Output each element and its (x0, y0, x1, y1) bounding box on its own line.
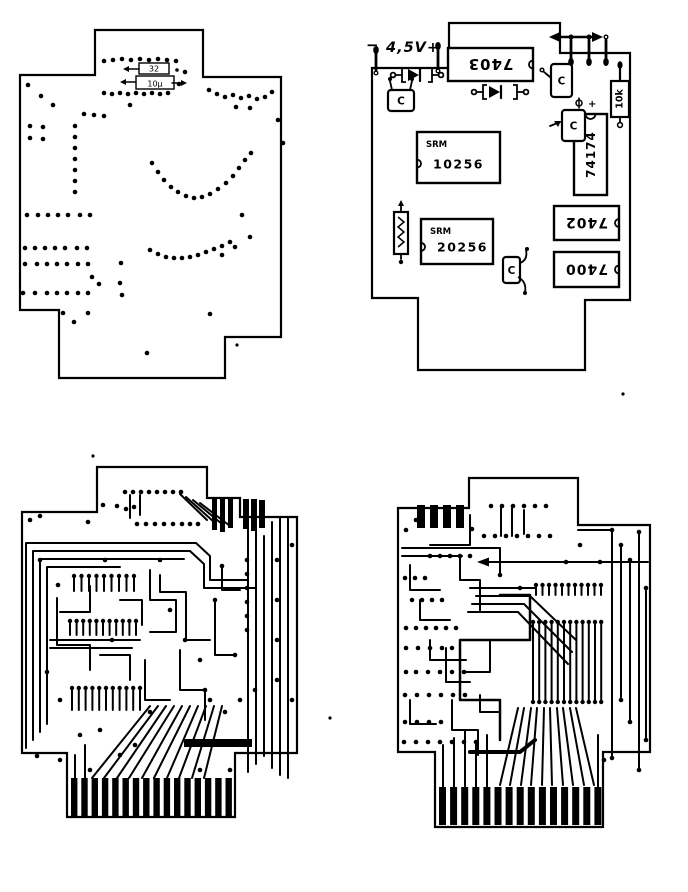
pad (166, 91, 171, 96)
pad (628, 720, 633, 725)
pad (204, 250, 209, 255)
pad (470, 527, 475, 532)
pad (82, 112, 87, 117)
pad (78, 733, 83, 738)
pad (403, 720, 408, 725)
pad (402, 740, 407, 745)
pad (74, 619, 78, 623)
pad (28, 136, 33, 141)
pad (109, 574, 113, 578)
edge-connector-finger (528, 787, 535, 825)
pad (410, 598, 415, 603)
pad (72, 320, 77, 325)
pad (203, 688, 208, 693)
pad (156, 252, 161, 257)
pad (65, 291, 70, 296)
pad (176, 190, 181, 195)
pad (427, 693, 432, 698)
edge-connector-finger (205, 778, 211, 816)
pad (637, 530, 642, 535)
panel-component-side (398, 478, 650, 827)
pad (23, 262, 28, 267)
pad (427, 720, 432, 725)
pad (220, 244, 225, 249)
pad (440, 598, 445, 603)
pad (208, 312, 213, 317)
pad (142, 92, 147, 97)
pad (598, 560, 603, 565)
lead-pad (391, 73, 396, 78)
pad (610, 528, 615, 533)
edge-connector-finger (550, 787, 557, 825)
pad (212, 247, 217, 252)
pad (135, 522, 140, 527)
pad (428, 554, 433, 559)
polarity-plus: + (588, 99, 596, 110)
pad (404, 626, 409, 631)
pad (139, 490, 144, 495)
pad (127, 619, 131, 623)
ic-type-label: SRM (430, 227, 451, 237)
scanned-sheet: 3210µ−4,5V+7403SRM10256SRM20256741747402… (0, 0, 688, 892)
pad (423, 576, 428, 581)
pad (245, 614, 250, 619)
pad (76, 262, 81, 267)
pad (587, 700, 591, 704)
pad (237, 166, 242, 171)
pad (35, 262, 40, 267)
pad (534, 583, 538, 587)
pad (156, 170, 161, 175)
pad (281, 141, 286, 146)
pad (171, 522, 176, 527)
ic-part-number: 7403 (468, 55, 514, 73)
pad (86, 311, 91, 316)
pad (198, 658, 203, 663)
pad (231, 93, 236, 98)
pad (124, 574, 128, 578)
pad (21, 291, 26, 296)
pad (556, 700, 560, 704)
thick-trace-bar (417, 505, 425, 528)
thick-trace-bar (443, 505, 451, 528)
pad (231, 174, 236, 179)
pad (148, 248, 153, 253)
lead-blob (617, 61, 622, 69)
pad (610, 756, 615, 761)
edge-connector-finger (472, 787, 479, 825)
pad (102, 59, 107, 64)
pad (414, 626, 419, 631)
edge-connector-finger (123, 778, 129, 816)
pad (132, 505, 137, 510)
pad (45, 262, 50, 267)
pad (77, 686, 81, 690)
pad (76, 291, 81, 296)
thick-trace-bar (251, 499, 257, 531)
pad (439, 720, 444, 725)
capacitor-label: C (508, 265, 516, 277)
pad (83, 686, 87, 690)
edge-connector-finger (71, 778, 77, 816)
scan-speck (621, 392, 624, 395)
ic-part-number: 20256 (437, 239, 488, 254)
lead-blob (435, 42, 441, 50)
pad (543, 620, 547, 624)
pad (523, 291, 527, 295)
pad (86, 520, 91, 525)
pad (73, 124, 78, 129)
scan-speck (328, 716, 331, 719)
pad (578, 543, 583, 548)
pad (65, 262, 70, 267)
pad (207, 88, 212, 93)
pad (245, 600, 250, 605)
pad (55, 291, 60, 296)
lead-blob (586, 58, 592, 66)
pad (208, 192, 213, 197)
edge-connector-finger (495, 787, 502, 825)
ic-part-number: 7402 (565, 214, 608, 230)
pad (525, 247, 529, 251)
pad (248, 106, 253, 111)
pad (101, 503, 106, 508)
edge-connector-finger (92, 778, 98, 816)
edge-connector-finger (133, 778, 139, 816)
pad (33, 291, 38, 296)
pad (43, 246, 48, 251)
pad (275, 638, 280, 643)
edge-connector-finger (450, 787, 457, 825)
pad (403, 576, 408, 581)
pad (208, 698, 213, 703)
pad (63, 246, 68, 251)
pad (97, 282, 102, 287)
pad (73, 135, 78, 140)
edge-connector-finger (483, 787, 490, 825)
edge-connector-finger (583, 787, 590, 825)
pad (593, 700, 597, 704)
pad (462, 740, 467, 745)
edge-connector-finger (461, 787, 468, 825)
edge-connector-finger (153, 778, 159, 816)
pad (404, 528, 409, 533)
pad (416, 646, 421, 651)
lead-blob (373, 46, 379, 54)
pad (101, 619, 105, 623)
pad (592, 583, 596, 587)
edge-connector-finger (439, 787, 446, 825)
pad (110, 92, 115, 97)
pad (249, 151, 254, 156)
mini-component-label: 10µ (147, 80, 162, 89)
pad (428, 646, 433, 651)
pad (547, 583, 551, 587)
pad (438, 670, 443, 675)
pad (415, 693, 420, 698)
pad (35, 754, 40, 759)
pad (38, 514, 43, 519)
pad (628, 558, 633, 563)
pad (147, 58, 152, 63)
pad (263, 95, 268, 100)
pad (25, 213, 30, 218)
thick-trace-bar (220, 498, 225, 532)
pad (602, 758, 607, 763)
pad (474, 740, 479, 745)
pad (593, 620, 597, 624)
pad (245, 558, 250, 563)
pad (543, 700, 547, 704)
pad (168, 608, 173, 613)
pad (426, 740, 431, 745)
arrowhead-icon (592, 32, 603, 42)
pad (102, 114, 107, 119)
pad (556, 620, 560, 624)
pad (223, 95, 228, 100)
pad (118, 91, 123, 96)
pad (599, 700, 603, 704)
pad (450, 670, 455, 675)
pad (92, 113, 97, 118)
pad (458, 554, 463, 559)
pad (155, 490, 160, 495)
pad (448, 554, 453, 559)
pad (56, 583, 61, 588)
pad (637, 768, 642, 773)
pad (515, 534, 520, 539)
pad (86, 291, 91, 296)
pad (184, 194, 189, 199)
pad (131, 490, 136, 495)
pad (540, 583, 544, 587)
pad (454, 626, 459, 631)
edge-connector-finger (81, 778, 87, 816)
pad (599, 583, 603, 587)
pad (413, 576, 418, 581)
panel-drill-view: 3210µ (20, 30, 285, 378)
pad (574, 620, 578, 624)
pad (179, 490, 184, 495)
pad (73, 190, 78, 195)
edge-connector-finger (112, 778, 118, 816)
pad (253, 688, 258, 693)
pad (290, 698, 295, 703)
pad (482, 534, 487, 539)
pad (104, 686, 108, 690)
pad (131, 686, 135, 690)
pad (580, 620, 584, 624)
pad (162, 178, 167, 183)
pad (511, 504, 516, 509)
pad (531, 620, 535, 624)
pad (414, 740, 419, 745)
pad (414, 670, 419, 675)
pad (579, 583, 583, 587)
pad (121, 619, 125, 623)
pad (90, 275, 95, 280)
pad (188, 522, 193, 527)
pad (119, 261, 124, 266)
mini-component-label: 32 (149, 65, 159, 74)
pad (531, 700, 535, 704)
pad (70, 686, 74, 690)
pad (115, 504, 120, 509)
pad (586, 583, 590, 587)
pad (165, 58, 170, 63)
pad (134, 619, 138, 623)
pad (117, 574, 121, 578)
pad (463, 693, 468, 698)
pad (118, 281, 123, 286)
panel-placement-view: −4,5V+7403SRM10256SRM202567417474027400C… (366, 23, 630, 370)
pad (156, 57, 161, 62)
pad (133, 743, 138, 748)
capacitor-label: C (558, 75, 566, 87)
pad (424, 626, 429, 631)
pad (573, 583, 577, 587)
edge-connector-finger (594, 787, 601, 825)
lead-pad (439, 73, 444, 78)
edge-connector-finger (143, 778, 149, 816)
pad (248, 235, 253, 240)
pad (549, 620, 553, 624)
pad (58, 698, 63, 703)
pad (103, 558, 108, 563)
pad (619, 543, 624, 548)
pad (120, 293, 125, 298)
pad (537, 700, 541, 704)
pad (144, 522, 149, 527)
pad (220, 564, 225, 569)
pad (568, 700, 572, 704)
pad (94, 619, 98, 623)
pad (245, 628, 250, 633)
pad (33, 246, 38, 251)
pad (560, 583, 564, 587)
capacitor-label: C (397, 95, 405, 107)
pad (420, 598, 425, 603)
pad (153, 522, 158, 527)
pad (169, 185, 174, 190)
pad (55, 262, 60, 267)
pad (451, 693, 456, 698)
pad (87, 574, 91, 578)
pad (450, 646, 455, 651)
thick-trace-bar (456, 505, 464, 528)
lead-blob (568, 58, 574, 66)
pad (564, 560, 569, 565)
pad (162, 522, 167, 527)
pad (426, 670, 431, 675)
pcb-layout-figure: 3210µ−4,5V+7403SRM10256SRM20256741747402… (0, 0, 688, 892)
pad (188, 255, 193, 260)
pad (102, 91, 107, 96)
pad (118, 753, 123, 758)
pad (171, 490, 176, 495)
resistor-left (394, 212, 408, 254)
pad (270, 90, 275, 95)
ic-type-label: SRM (426, 140, 447, 150)
edge-connector-finger (184, 778, 190, 816)
pad (53, 246, 58, 251)
pad (132, 574, 136, 578)
lead-pad (524, 90, 529, 95)
pad (234, 105, 239, 110)
pad (196, 253, 201, 258)
pad (163, 490, 168, 495)
pad (158, 558, 163, 563)
pad (180, 256, 185, 261)
pad (404, 670, 409, 675)
pad (138, 686, 142, 690)
pad (111, 686, 115, 690)
pad (233, 245, 238, 250)
pad (183, 638, 188, 643)
pad (562, 620, 566, 624)
pad (404, 646, 409, 651)
pad (537, 534, 542, 539)
pad (228, 240, 233, 245)
pad (275, 598, 280, 603)
pad (223, 710, 228, 715)
pad (504, 534, 509, 539)
pad (245, 586, 250, 591)
pad (124, 686, 128, 690)
pad (38, 558, 43, 563)
edge-connector-finger (517, 787, 524, 825)
pad (148, 710, 153, 715)
pad (434, 626, 439, 631)
pad (68, 619, 72, 623)
pad (85, 246, 90, 251)
pad (233, 653, 238, 658)
pad (430, 598, 435, 603)
pad (493, 534, 498, 539)
pad (450, 740, 455, 745)
pad (45, 670, 50, 675)
pad (66, 213, 71, 218)
pad (45, 291, 50, 296)
pad (97, 686, 101, 690)
thick-trace-bar (228, 498, 233, 528)
pad (238, 698, 243, 703)
pad (102, 574, 106, 578)
resistor-value: 10k (615, 89, 626, 109)
pad (175, 68, 179, 72)
capacitor-label: C (570, 120, 578, 132)
pad (275, 678, 280, 683)
pad (544, 504, 549, 509)
edge-connector-finger (195, 778, 201, 816)
pad (28, 124, 33, 129)
pad (39, 94, 44, 99)
pad (200, 195, 205, 200)
pad (438, 554, 443, 559)
pad (216, 187, 221, 192)
pad (399, 260, 403, 264)
pad (522, 504, 527, 509)
edge-connector-finger (174, 778, 180, 816)
pad (73, 168, 78, 173)
pad (644, 586, 649, 591)
pad (110, 638, 115, 643)
ic-part-number: 10256 (433, 157, 484, 172)
pad (51, 103, 56, 108)
pad (275, 558, 280, 563)
pad (126, 92, 131, 97)
edge-connector-finger (215, 778, 221, 816)
